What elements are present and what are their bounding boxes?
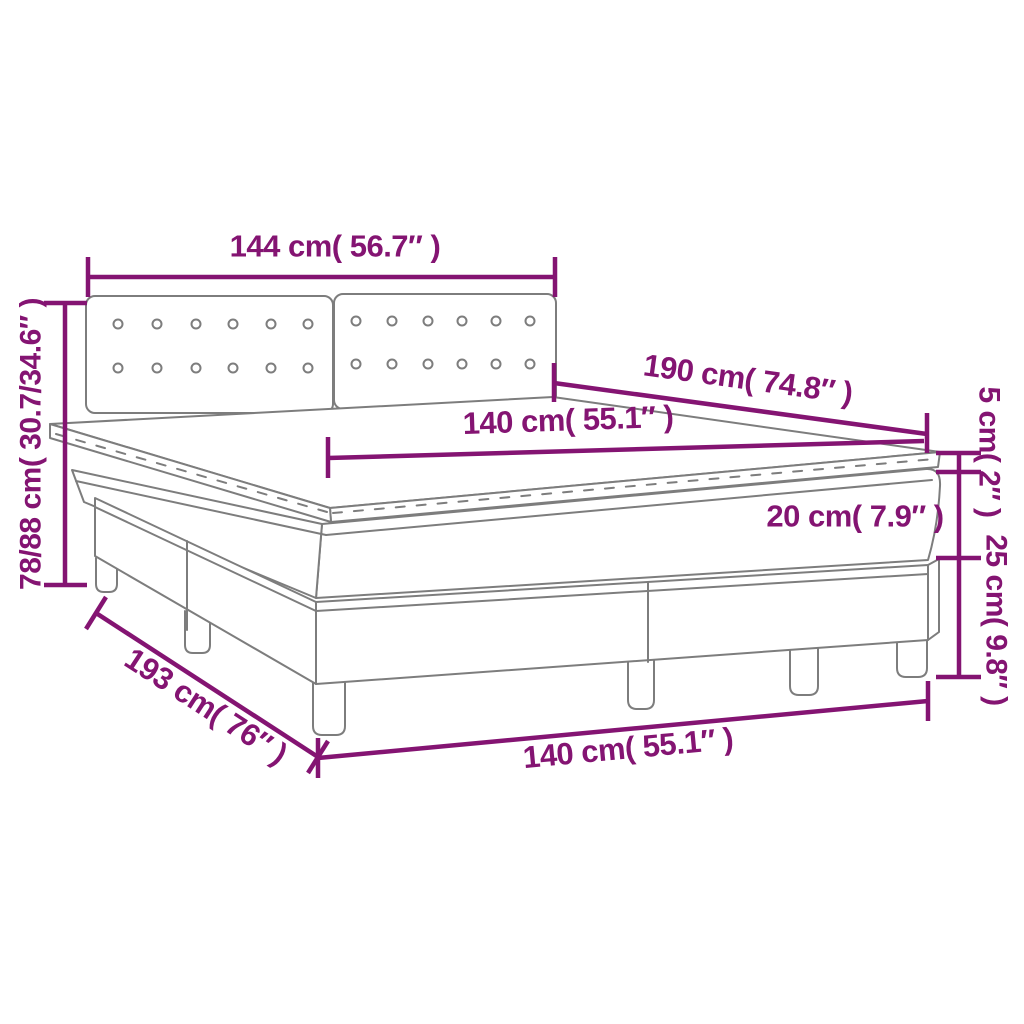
label-mattress-thickness: 20 cm( 7.9″ ) bbox=[766, 499, 943, 534]
bed-leg bbox=[313, 679, 345, 735]
label-mattress-top-width: 140 cm( 55.1″ ) bbox=[462, 399, 674, 441]
bed-leg bbox=[897, 637, 927, 677]
headboard-panel-right bbox=[334, 294, 556, 409]
dim-tick bbox=[86, 597, 106, 629]
headboard-button bbox=[229, 364, 238, 373]
headboard-button bbox=[424, 317, 433, 326]
label-overall-height: 78/88 cm( 30.7/34.6″ ) bbox=[15, 298, 48, 590]
headboard-button bbox=[114, 320, 123, 329]
label-overall-length: 193 cm( 76″ ) bbox=[119, 641, 294, 772]
headboard-button bbox=[153, 364, 162, 373]
headboard bbox=[86, 294, 556, 413]
headboard-button bbox=[304, 320, 313, 329]
label-topper-thickness: 5 cm( 2″ ) bbox=[973, 386, 1006, 517]
headboard-button bbox=[153, 320, 162, 329]
headboard-button bbox=[192, 364, 201, 373]
headboard-button bbox=[424, 360, 433, 369]
base-right-face bbox=[928, 559, 939, 640]
headboard-button bbox=[267, 364, 276, 373]
diagram-canvas: 144 cm( 56.7″ ) 78/88 cm( 30.7/34.6″ ) 1… bbox=[0, 0, 1024, 1024]
headboard-button bbox=[492, 360, 501, 369]
headboard-button bbox=[229, 320, 238, 329]
headboard-button bbox=[526, 360, 535, 369]
headboard-button bbox=[388, 360, 397, 369]
headboard-button bbox=[388, 317, 397, 326]
headboard-button bbox=[526, 317, 535, 326]
bed-leg bbox=[628, 657, 654, 709]
label-headboard-width: 144 cm( 56.7″ ) bbox=[230, 229, 441, 264]
headboard-button bbox=[458, 360, 467, 369]
headboard-button bbox=[114, 364, 123, 373]
headboard-button bbox=[352, 360, 361, 369]
headboard-button bbox=[492, 317, 501, 326]
headboard-button bbox=[304, 364, 313, 373]
headboard-button bbox=[458, 317, 467, 326]
bed-leg bbox=[790, 645, 818, 695]
label-base-height: 25 cm( 9.8″ ) bbox=[980, 534, 1013, 705]
headboard-button bbox=[267, 320, 276, 329]
bed-dimension-diagram: 144 cm( 56.7″ ) 78/88 cm( 30.7/34.6″ ) 1… bbox=[0, 0, 1024, 1024]
headboard-button bbox=[352, 317, 361, 326]
headboard-panel-left bbox=[86, 296, 333, 413]
headboard-button bbox=[192, 320, 201, 329]
